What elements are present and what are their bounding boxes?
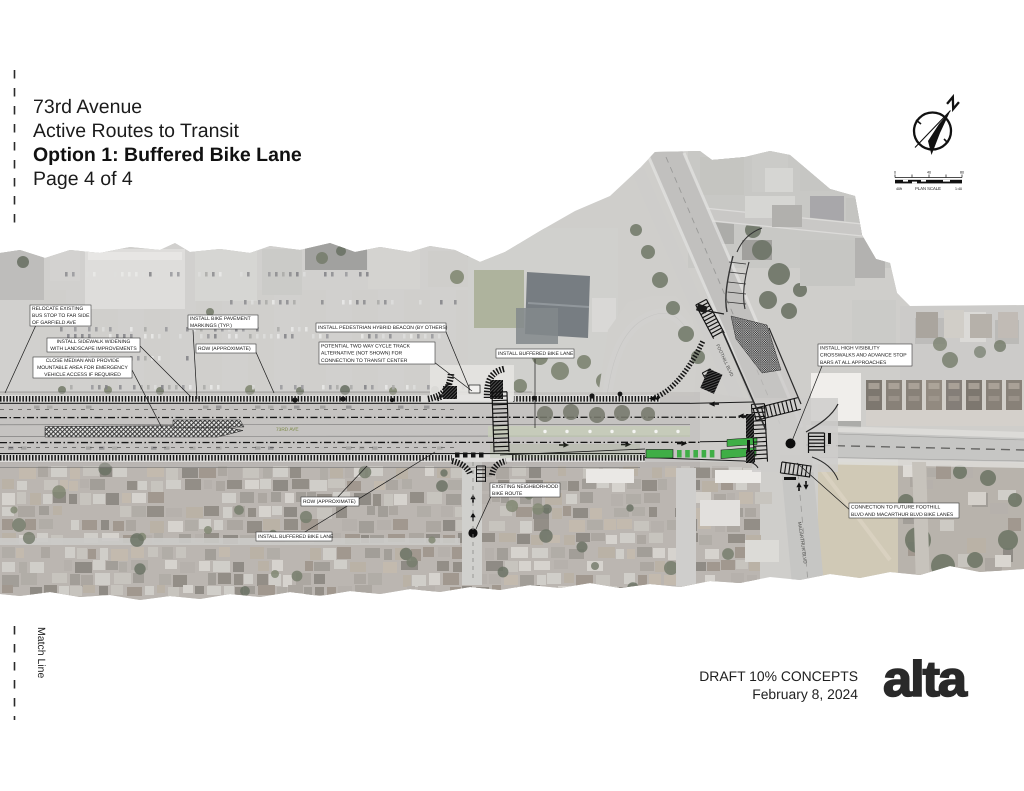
svg-text:WITH LANDSCAPE IMPROVEMENTS: WITH LANDSCAPE IMPROVEMENTS <box>50 346 137 352</box>
svg-text:BIKE ROUTE: BIKE ROUTE <box>492 491 523 497</box>
svg-text:alta: alta <box>883 651 968 707</box>
svg-text:1:40: 1:40 <box>955 187 962 191</box>
svg-text:INSTALL PEDESTRIAN HYBRID BEAC: INSTALL PEDESTRIAN HYBRID BEACON (BY OTH… <box>318 325 448 331</box>
svg-text:February 8, 2024: February 8, 2024 <box>752 686 858 702</box>
svg-text:73rd Avenue: 73rd Avenue <box>33 96 142 118</box>
svg-text:VEHICLE ACCESS IF REQUIRED: VEHICLE ACCESS IF REQUIRED <box>44 372 121 378</box>
svg-text:POTENTIAL TWO WAY CYCLE TRACK: POTENTIAL TWO WAY CYCLE TRACK <box>321 343 411 349</box>
svg-text:BARS AT ALL APPROACHES: BARS AT ALL APPROACHES <box>820 360 887 366</box>
svg-text:INSTALL BUFFERED BIKE LANE: INSTALL BUFFERED BIKE LANE <box>498 351 574 357</box>
svg-text:80: 80 <box>960 171 964 175</box>
svg-text:Page 4 of 4: Page 4 of 4 <box>33 168 133 190</box>
svg-text:EXISTING NEIGHBORHOOD: EXISTING NEIGHBORHOOD <box>492 484 559 490</box>
svg-text:73RD AVE: 73RD AVE <box>276 427 299 433</box>
svg-text:INSTALL BUFFERED BIKE LANE: INSTALL BUFFERED BIKE LANE <box>258 534 334 540</box>
svg-text:PLAN SCALE: PLAN SCALE <box>915 186 941 191</box>
svg-text:RELOCATE EXISTING: RELOCATE EXISTING <box>32 306 83 312</box>
svg-text:Active Routes to Transit: Active Routes to Transit <box>33 120 240 142</box>
svg-text:BLVD AND MACARTHUR BLVD BIKE L: BLVD AND MACARTHUR BLVD BIKE LANES <box>851 512 954 518</box>
svg-text:MARKINGS (TYP.): MARKINGS (TYP.) <box>190 323 232 329</box>
svg-text:40: 40 <box>927 171 931 175</box>
svg-text:ROW (APPROXIMATE): ROW (APPROXIMATE) <box>198 346 251 352</box>
svg-text:INSTALL BIKE PAVEMENT: INSTALL BIKE PAVEMENT <box>190 316 251 322</box>
svg-text:CONNECTION TO FUTURE FOOTHILL: CONNECTION TO FUTURE FOOTHILL <box>851 504 940 510</box>
svg-text:INSTALL SIDEWALK WIDENING: INSTALL SIDEWALK WIDENING <box>57 339 131 345</box>
svg-text:CROSSWALKS AND ADVANCE STOP: CROSSWALKS AND ADVANCE STOP <box>820 353 907 359</box>
svg-text:INSTALL HIGH VISIBILITY: INSTALL HIGH VISIBILITY <box>820 345 880 351</box>
svg-text:ALTERNATIVE (NOT SHOWN) FOR: ALTERNATIVE (NOT SHOWN) FOR <box>321 351 403 357</box>
svg-text:MOUNTABLE AREA FOR EMERGENCY: MOUNTABLE AREA FOR EMERGENCY <box>37 365 128 371</box>
svg-text:Match Line: Match Line <box>35 627 47 679</box>
svg-text:CONNECTION TO TRANSIT CENTER: CONNECTION TO TRANSIT CENTER <box>321 358 408 364</box>
svg-text:0: 0 <box>894 171 896 175</box>
svg-text:40ft: 40ft <box>896 187 902 191</box>
svg-text:OF GARFIELD AVE: OF GARFIELD AVE <box>32 320 77 326</box>
svg-text:DRAFT 10% CONCEPTS: DRAFT 10% CONCEPTS <box>699 668 858 684</box>
svg-text:Option 1: Buffered Bike Lane: Option 1: Buffered Bike Lane <box>33 144 302 166</box>
svg-text:CLOSE MEDIAN AND PROVIDE: CLOSE MEDIAN AND PROVIDE <box>46 358 120 364</box>
svg-text:ROW (APPROXIMATE): ROW (APPROXIMATE) <box>303 499 356 505</box>
svg-text:BUS STOP TO FAR SIDE: BUS STOP TO FAR SIDE <box>32 313 90 319</box>
